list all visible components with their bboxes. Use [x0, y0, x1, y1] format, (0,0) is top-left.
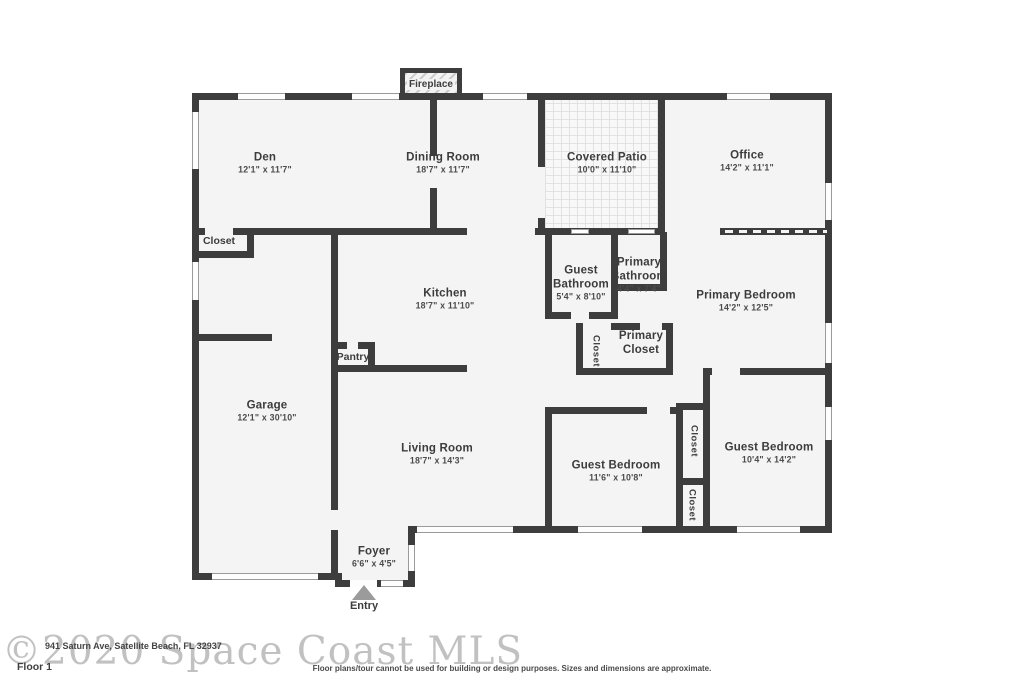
wall-segment: [358, 342, 375, 349]
room-label-primary-bedroom: Primary Bedroom 14'2" x 12'5": [696, 289, 796, 314]
property-address: 941 Saturn Ave, Satellite Beach, FL 3293…: [45, 641, 222, 651]
wall-segment: [676, 403, 683, 533]
patio-door: [571, 229, 589, 234]
room-label-garage: Garage 12'1" x 30'10": [237, 399, 296, 424]
room-label-guest-bedroom-1: Guest Bedroom 11'6" x 10'8": [572, 459, 661, 484]
closet-label: Closet: [203, 235, 235, 247]
garage-door-marker: [212, 573, 318, 580]
wall-segment: [658, 100, 665, 232]
room-label-guest-bathroom: Guest Bathroom 5'4" x 8'10": [551, 264, 611, 303]
wall-segment: [589, 312, 618, 319]
wall-segment: [825, 93, 832, 533]
wall-segment: [545, 312, 571, 319]
wall-segment: [740, 368, 832, 375]
window-marker: [408, 545, 415, 571]
wall-segment: [676, 478, 710, 485]
wall-segment: [576, 368, 673, 375]
closet-label: Closet: [687, 489, 698, 521]
wall-segment: [335, 342, 347, 349]
room-label-living-room: Living Room 18'7" x 14'3": [401, 442, 473, 467]
closet-rail-wall: [720, 228, 832, 235]
wall-segment: [538, 100, 545, 167]
wall-segment: [331, 530, 338, 580]
wall-segment: [545, 407, 647, 414]
room-label-foyer: Foyer 6'6" x 4'5": [352, 545, 396, 570]
wall-segment: [233, 228, 467, 235]
disclaimer-text: Floor plans/tour cannot be used for buil…: [256, 664, 768, 673]
room-label-guest-bedroom-2: Guest Bedroom 10'4" x 14'2": [725, 441, 814, 466]
wall-segment: [335, 365, 467, 372]
wall-segment: [192, 334, 272, 341]
room-label-office: Office 14'2" x 11'1": [720, 149, 774, 174]
window-marker: [192, 112, 199, 169]
pantry-label: Pantry: [337, 351, 370, 363]
room-label-den: Den 12'1" x 11'7": [238, 151, 292, 176]
wall-segment: [430, 100, 437, 156]
patio-door: [628, 229, 655, 234]
wall-segment: [676, 403, 710, 410]
wall-segment: [192, 228, 205, 235]
entry-label: Entry: [350, 600, 378, 612]
window-marker: [483, 93, 527, 100]
window-marker: [825, 323, 832, 363]
entry-arrow-icon: [352, 585, 376, 600]
window-marker: [192, 262, 199, 300]
wall-segment: [545, 407, 552, 533]
wall-segment: [703, 368, 712, 375]
room-label-covered-patio: Covered Patio 10'0" x 11'10": [567, 151, 647, 176]
window-marker: [352, 93, 399, 100]
room-label-primary-bathroom: Primary Bathroom 4'4" x 7'4": [607, 256, 671, 295]
closet-rail: [725, 230, 827, 233]
closet-label: Closet: [591, 335, 602, 367]
closet-label: Closet: [689, 425, 700, 457]
wall-segment: [192, 251, 254, 258]
room-label-dining-room: Dining Room 18'7" x 11'7": [406, 151, 480, 176]
room-label-primary-closet: Primary Closet: [615, 329, 667, 357]
window-marker: [578, 526, 642, 533]
wall-segment: [430, 188, 437, 232]
floor-plan: Fireplace: [0, 0, 1024, 683]
floor-number: Floor 1: [17, 661, 52, 673]
window-marker: [737, 526, 800, 533]
window-marker: [238, 93, 285, 100]
window-marker: [417, 526, 513, 533]
fireplace-label: Fireplace: [407, 79, 455, 90]
room-label-kitchen: Kitchen 18'7" x 11'10": [416, 287, 475, 312]
window-marker: [825, 183, 832, 220]
window-marker: [825, 407, 832, 440]
window-marker: [727, 93, 770, 100]
window-marker: [381, 580, 403, 587]
wall-segment: [703, 373, 710, 533]
